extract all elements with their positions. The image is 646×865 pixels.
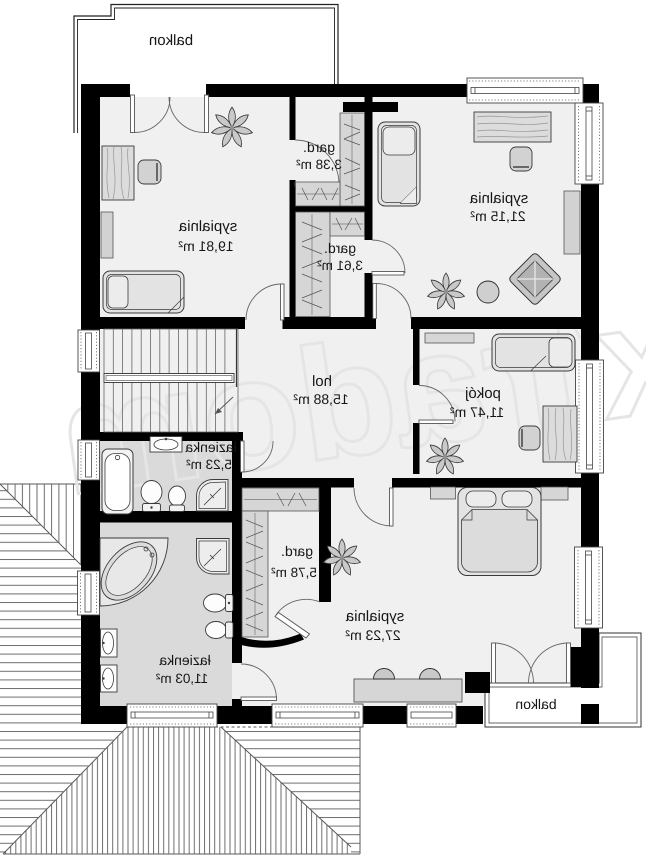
svg-text:łazienka: łazienka	[185, 439, 237, 455]
svg-text:3,61 m²: 3,61 m²	[317, 258, 363, 273]
svg-text:19,81 m²: 19,81 m²	[178, 238, 234, 254]
svg-text:łazienka: łazienka	[159, 652, 211, 668]
svg-text:gard.: gard.	[303, 139, 335, 155]
svg-text:5,23 m²: 5,23 m²	[186, 457, 232, 472]
svg-text:11,03 m²: 11,03 m²	[155, 671, 208, 686]
svg-text:3,38 m²: 3,38 m²	[296, 157, 342, 172]
svg-text:sypialnia: sypialnia	[345, 608, 404, 625]
svg-text:15,88 m²: 15,88 m²	[293, 391, 349, 407]
svg-text:27,23 m²: 27,23 m²	[345, 627, 401, 643]
svg-text:gard.: gard.	[324, 240, 356, 256]
svg-text:21,15 m²: 21,15 m²	[470, 208, 526, 224]
svg-text:sypialnia: sypialnia	[178, 218, 237, 235]
svg-text:5,78 m²: 5,78 m²	[271, 565, 317, 580]
svg-text:11,47 m²: 11,47 m²	[450, 404, 505, 420]
svg-text:pokój: pokój	[465, 385, 501, 402]
svg-text:gard.: gard.	[281, 543, 313, 559]
svg-text:sypialnia: sypialnia	[469, 190, 528, 207]
svg-text:hol: hol	[312, 373, 332, 390]
svg-text:balkon: balkon	[149, 32, 193, 49]
svg-text:balkon: balkon	[515, 696, 556, 712]
